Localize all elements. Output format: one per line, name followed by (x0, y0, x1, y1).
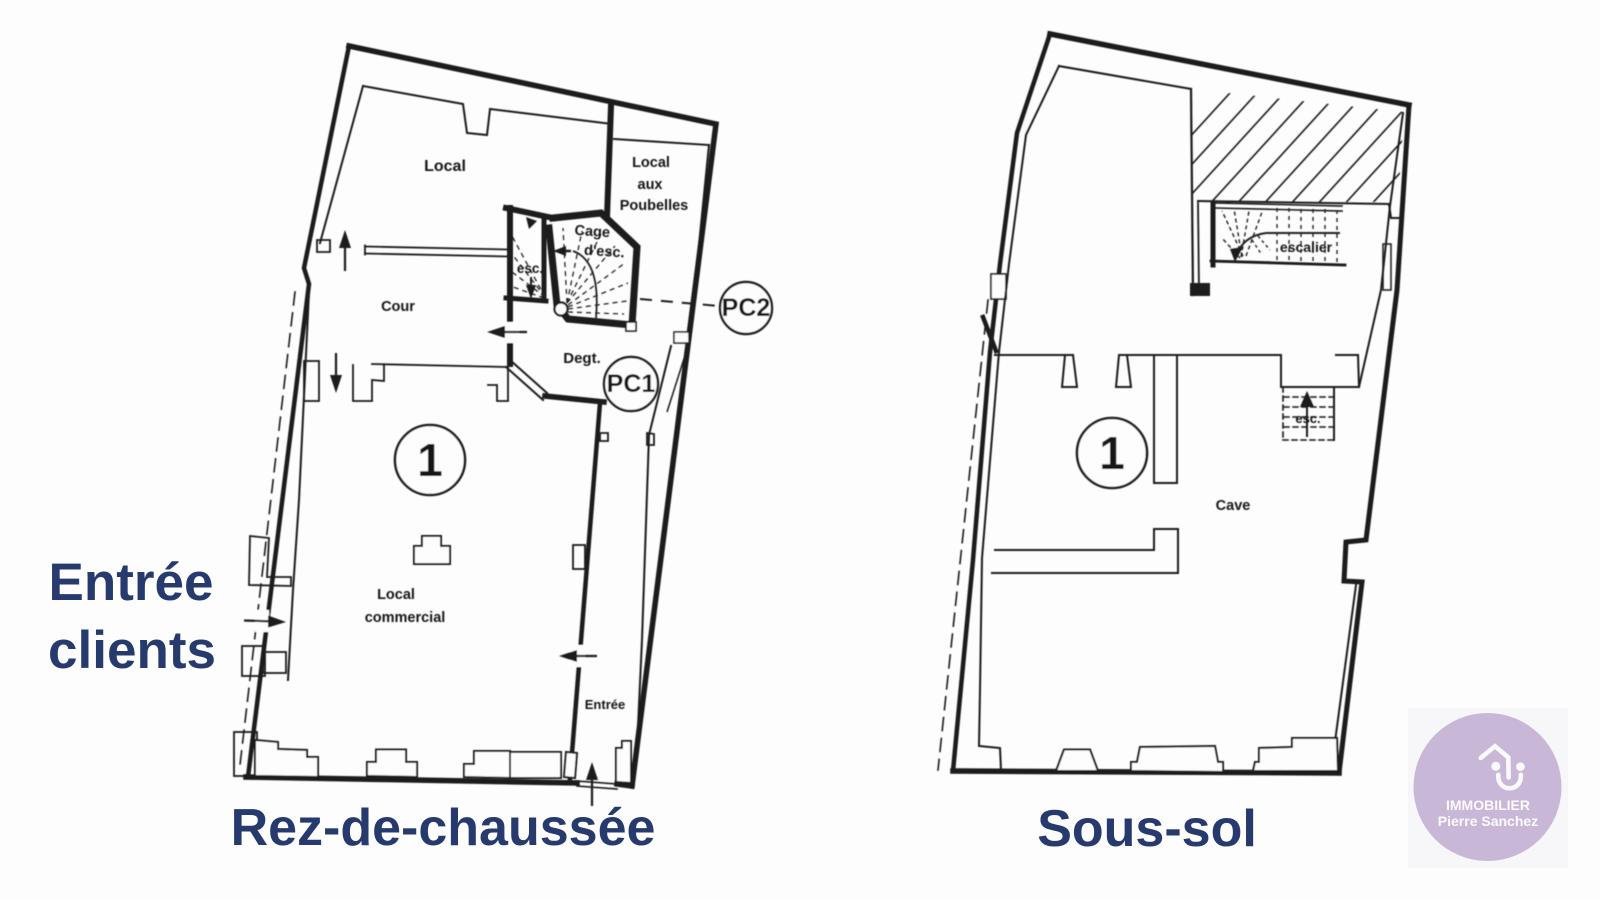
svg-text:Poubelles: Poubelles (620, 198, 689, 214)
svg-text:Degt.: Degt. (563, 350, 601, 367)
svg-text:Sous-sol: Sous-sol (1037, 800, 1257, 858)
svg-text:Entrée: Entrée (49, 553, 214, 612)
svg-text:commercial: commercial (365, 610, 446, 626)
svg-text:Cour: Cour (381, 299, 415, 315)
svg-text:escalier: escalier (1280, 239, 1333, 255)
svg-text:Pierre Sanchez: Pierre Sanchez (1438, 813, 1538, 829)
svg-text:Entrée: Entrée (585, 697, 625, 712)
svg-text:Local: Local (377, 587, 415, 603)
svg-text:Cave: Cave (1216, 498, 1251, 514)
svg-text:aux: aux (638, 177, 663, 193)
svg-text:esc.: esc. (1295, 411, 1320, 426)
svg-text:Rez-de-chaussée: Rez-de-chaussée (231, 799, 656, 857)
svg-text:1: 1 (417, 434, 443, 486)
svg-text:Local: Local (424, 158, 466, 175)
svg-text:PC2: PC2 (722, 294, 771, 322)
svg-text:IMMOBILIER: IMMOBILIER (1446, 797, 1530, 813)
svg-text:Local: Local (632, 155, 670, 171)
svg-text:d'esc.: d'esc. (584, 243, 626, 262)
svg-text:clients: clients (48, 621, 216, 680)
svg-text:PC1: PC1 (607, 370, 656, 398)
svg-text:1: 1 (1099, 427, 1125, 479)
svg-text:esc.: esc. (517, 261, 543, 276)
svg-text:Cage: Cage (574, 223, 610, 241)
